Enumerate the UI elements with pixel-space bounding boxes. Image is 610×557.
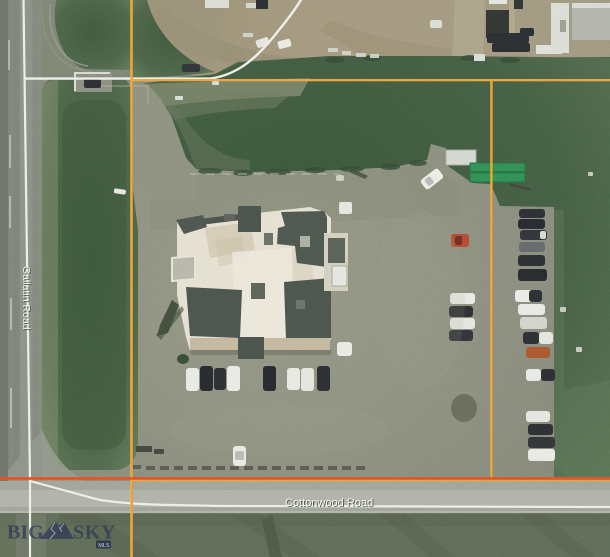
svg-text:SKY: SKY (73, 522, 116, 544)
svg-text:MLS: MLS (98, 543, 110, 549)
svg-text:BIG: BIG (7, 522, 44, 544)
